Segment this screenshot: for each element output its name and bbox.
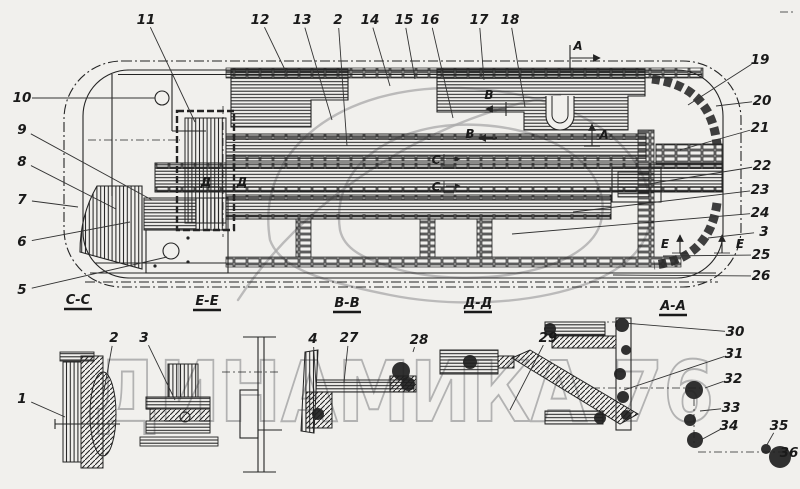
callout-number-19: 19 <box>751 52 770 68</box>
callout-number-14: 14 <box>361 12 380 28</box>
cut-letter-А-0: А <box>572 39 582 53</box>
callout-number-15: 15 <box>395 12 414 28</box>
callout-number-25: 25 <box>752 247 771 263</box>
callout-number-5: 5 <box>17 282 26 298</box>
cross-connector <box>420 219 435 257</box>
cut-letter-Д-6: Д <box>200 175 212 189</box>
lower-left-compartment <box>146 230 228 273</box>
callout-number-30: 30 <box>726 324 745 340</box>
callout-11: 11 <box>137 12 195 122</box>
callout-number-28: 28 <box>410 332 429 348</box>
callout-number-3: 3 <box>759 224 768 240</box>
callout-number-35: 35 <box>770 418 789 434</box>
leader-line-1 <box>31 402 65 417</box>
section-label-text: Д-Д <box>463 296 493 311</box>
section-label-Е-Е: Е-Е <box>193 294 221 310</box>
callout-number-8: 8 <box>17 154 26 170</box>
callout-number-33: 33 <box>722 400 741 416</box>
callout-36: 36 <box>780 445 799 461</box>
callout-number-21: 21 <box>751 120 770 136</box>
callout-number-12: 12 <box>251 12 270 28</box>
leader-line-26 <box>613 275 751 276</box>
callout-number-32: 32 <box>724 371 743 387</box>
section-label-А-А: А-А <box>659 299 687 315</box>
cut-letter-С-4: С <box>432 153 441 167</box>
callout-number-26: 26 <box>752 268 771 284</box>
callout-number-10: 10 <box>13 90 32 106</box>
wheelhouse-rib-panel <box>80 186 142 269</box>
section-label-С-С: С-С <box>64 293 92 309</box>
callout-number-4: 4 <box>307 331 317 347</box>
section-label-text: Е-Е <box>195 294 218 309</box>
leader-line-30 <box>624 323 725 331</box>
parts-diagram: ДИНАМИКА 76 <box>0 0 800 489</box>
callout-number-31: 31 <box>725 346 744 362</box>
bracket-insert <box>618 172 649 197</box>
callout-number-2: 2 <box>109 330 118 346</box>
callout-number-20: 20 <box>753 93 772 109</box>
cross-connector <box>296 219 311 257</box>
cut-letter-В-2: В <box>484 88 493 102</box>
leader-line-7 <box>32 201 78 207</box>
main-plan-view <box>64 12 794 287</box>
callout-30: 30 <box>624 323 744 340</box>
callout-number-34: 34 <box>720 418 739 434</box>
section-label-text: А-А <box>659 299 686 314</box>
leader-line-3 <box>708 233 754 238</box>
callout-number-23: 23 <box>751 182 770 198</box>
cut-letter-А-1: А <box>598 128 608 142</box>
section-labels: С-СЕ-ЕВ-ВД-ДА-А <box>64 293 687 315</box>
section-label-text: С-С <box>66 293 91 308</box>
callout-10: 10 <box>13 90 155 106</box>
callout-number-29: 29 <box>539 330 558 346</box>
callout-number-18: 18 <box>501 12 520 28</box>
callout-number-6: 6 <box>17 234 26 250</box>
callout-number-24: 24 <box>751 205 770 221</box>
callout-1: 1 <box>17 391 65 417</box>
cut-letter-С-5: С <box>432 180 441 194</box>
section-label-В-В: В-В <box>333 296 361 312</box>
callout-number-3: 3 <box>139 330 148 346</box>
bottom-sill-rail <box>226 257 681 267</box>
catalog-diagram-page: ДИНАМИКА 76 <box>0 0 800 489</box>
callout-number-27: 27 <box>340 330 359 346</box>
section-label-text: В-В <box>334 296 359 311</box>
detail-section-a-a <box>592 318 791 468</box>
callout-20: 20 <box>716 93 771 109</box>
callout-number-7: 7 <box>17 192 27 208</box>
cut-letter-В-3: В <box>465 127 474 141</box>
corner-arch-top <box>652 79 717 145</box>
section-label-Д-Д: Д-Д <box>463 296 493 312</box>
left-support-block-2 <box>196 198 228 230</box>
callout-number-2: 2 <box>333 12 342 28</box>
callout-7: 7 <box>17 192 78 208</box>
callout-number-22: 22 <box>753 158 772 174</box>
callout-number-1: 1 <box>17 391 26 407</box>
callout-number-13: 13 <box>293 12 312 28</box>
leader-line-9 <box>31 134 152 200</box>
drain-hole <box>163 243 179 259</box>
cut-letter-Е-9: Е <box>736 237 745 251</box>
callout-number-17: 17 <box>470 12 489 28</box>
callout-number-11: 11 <box>137 12 156 28</box>
mounting-hole <box>155 91 169 105</box>
u-channel <box>546 96 574 130</box>
cut-letter-Д-7: Д <box>236 175 248 189</box>
cross-connector <box>477 219 492 257</box>
callout-number-9: 9 <box>17 122 26 138</box>
left-support-block <box>144 198 196 230</box>
callout-number-36: 36 <box>780 445 799 461</box>
callout-number-16: 16 <box>421 12 440 28</box>
callout-12: 12 <box>251 12 288 76</box>
cut-letter-Е-8: Е <box>661 237 670 251</box>
central-longeron-lower <box>226 195 611 219</box>
